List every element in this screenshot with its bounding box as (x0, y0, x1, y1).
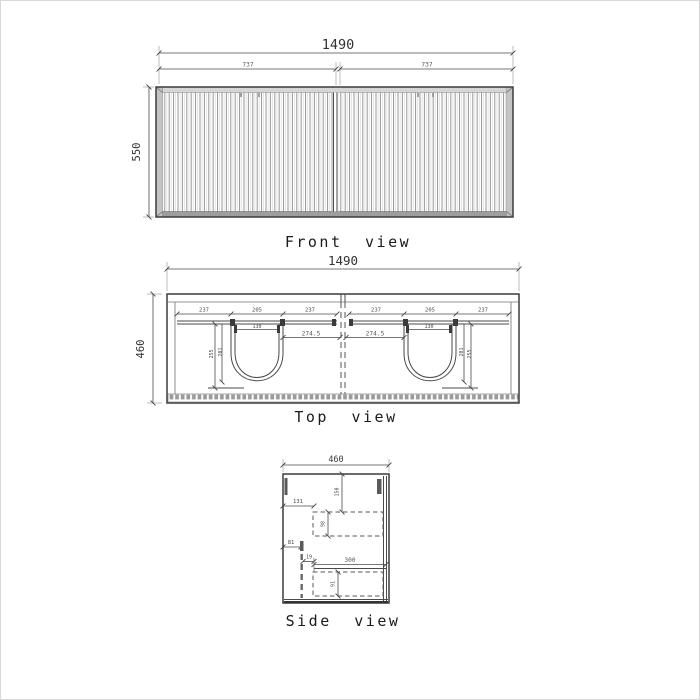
front-left-stile (156, 87, 163, 217)
side-door-front (300, 541, 304, 598)
top-right-depth-inner: 201 (459, 347, 465, 356)
top-right-depth-outer: 255 (467, 349, 473, 358)
technical-drawing: 1490 737 737 550 (1, 1, 699, 699)
drawing-sheet: 1490 737 737 550 (0, 0, 700, 700)
front-dim-height: 550 (131, 87, 154, 217)
side-bottom-drawer-height-value: 91 (331, 581, 337, 587)
rim-block (332, 319, 336, 326)
top-left-depth-outer: 255 (209, 349, 215, 358)
front-top-rail (163, 87, 508, 93)
top-left-chain-1: 237 (199, 308, 209, 314)
side-dim-depth: 460 (283, 455, 389, 472)
side-back-clearance-value: 150 (335, 487, 341, 496)
top-view: 1490 460 (135, 253, 519, 426)
front-dim-half-widths: 737 737 (159, 62, 513, 86)
top-basin-rims (177, 319, 509, 326)
side-door-top (300, 541, 304, 551)
front-half-right-value: 737 (421, 62, 432, 69)
top-basin-cutouts (231, 324, 456, 381)
side-left-offset-value: 81 (288, 540, 295, 546)
top-right-chain-2: 205 (425, 308, 435, 314)
top-overall-width-value: 1490 (328, 253, 358, 268)
side-top-drawer-height-value: 98 (321, 521, 327, 527)
top-dim-to-center: 274.5 274.5 (283, 331, 404, 338)
side-depth-value: 460 (328, 455, 343, 465)
top-left-to-center-value: 274.5 (302, 331, 321, 338)
top-left-chain-3: 237 (305, 308, 315, 314)
front-right-stile (507, 87, 514, 217)
top-right-faucet-value: 130 (424, 324, 433, 330)
side-back-bracket (377, 479, 382, 494)
top-depth-value: 460 (135, 340, 147, 359)
side-front-gap-value: 19 (306, 555, 312, 561)
front-height-value: 550 (131, 143, 143, 162)
side-drawer-width-value: 300 (344, 557, 355, 564)
side-dim-front-gap: 19 300 (303, 555, 386, 573)
top-dim-basin-depths: 255 201 201 255 (208, 324, 478, 388)
side-dim-left-offset: 81 (283, 540, 301, 547)
top-dim-overall-width: 1490 (167, 253, 519, 291)
top-left-faucet-value: 130 (252, 324, 261, 330)
side-top-drawer: 98 (313, 512, 383, 536)
side-dim-back-clearance: 150 (335, 474, 343, 512)
side-front-bracket (285, 478, 288, 495)
side-bottom-drawer: 91 (313, 572, 383, 596)
front-view: 1490 737 737 550 (131, 37, 513, 251)
rim-block (349, 319, 353, 326)
top-center-joint (341, 294, 345, 394)
left-basin-outer (231, 324, 283, 381)
top-right-chain-3: 237 (478, 308, 488, 314)
side-bottom-drawer-box (313, 572, 383, 596)
top-fluted-front-edge (168, 394, 518, 402)
front-overall-width-value: 1490 (322, 37, 355, 53)
top-dim-left-chain: 237 205 237 (177, 308, 337, 315)
top-right-chain-1: 237 (371, 308, 381, 314)
right-basin-outer (404, 324, 456, 381)
side-view: 460 150 131 98 81 (283, 455, 400, 630)
top-view-label: Top view (294, 408, 397, 426)
top-dim-faucet-holes: 130 130 (234, 324, 452, 333)
front-view-label: Front view (285, 233, 411, 251)
top-right-to-center-value: 274.5 (366, 331, 385, 338)
front-cabinet-panel (156, 87, 513, 217)
side-top-offset-value: 131 (293, 499, 303, 505)
side-view-label: Side view (286, 612, 401, 630)
top-dim-right-chain: 237 205 237 (349, 308, 509, 315)
top-dim-depth: 460 (135, 294, 162, 403)
top-left-chain-2: 205 (252, 308, 262, 314)
right-basin-inner (408, 324, 452, 378)
top-left-depth-inner: 201 (218, 347, 224, 356)
front-half-left-value: 737 (242, 62, 253, 69)
left-basin-inner (235, 324, 279, 378)
front-bottom-rail (163, 212, 508, 218)
side-dim-top-offset: 131 (283, 499, 314, 506)
